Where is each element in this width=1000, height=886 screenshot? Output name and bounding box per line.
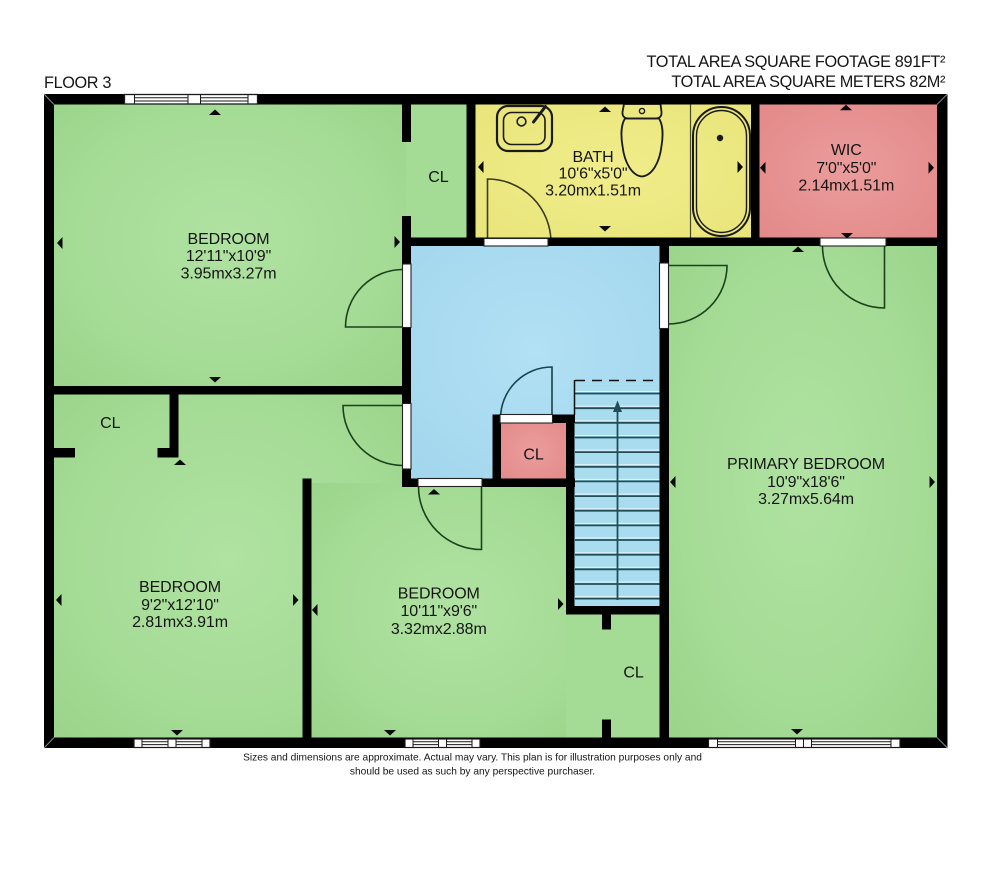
svg-text:Sizes and dimensions are appro: Sizes and dimensions are approximate. Ac… bbox=[243, 753, 702, 764]
svg-text:10'9"x18'6": 10'9"x18'6" bbox=[767, 474, 845, 491]
svg-text:10'11"x9'6": 10'11"x9'6" bbox=[401, 603, 478, 620]
svg-text:3.27mx5.64m: 3.27mx5.64m bbox=[758, 491, 854, 508]
svg-text:3.20mx1.51m: 3.20mx1.51m bbox=[545, 183, 641, 200]
svg-text:BEDROOM: BEDROOM bbox=[139, 579, 221, 596]
svg-text:CL: CL bbox=[428, 169, 448, 186]
svg-text:3.95mx3.27m: 3.95mx3.27m bbox=[181, 266, 277, 283]
svg-text:PRIMARY BEDROOM: PRIMARY BEDROOM bbox=[727, 456, 885, 473]
svg-text:12'11"x10'9": 12'11"x10'9" bbox=[186, 248, 271, 265]
svg-text:TOTAL AREA SQUARE METERS 82M²: TOTAL AREA SQUARE METERS 82M² bbox=[671, 73, 946, 91]
svg-text:CL: CL bbox=[523, 447, 543, 464]
svg-text:BEDROOM: BEDROOM bbox=[398, 586, 480, 603]
svg-text:BEDROOM: BEDROOM bbox=[188, 231, 270, 248]
svg-text:BATH: BATH bbox=[572, 149, 613, 166]
svg-text:FLOOR 3: FLOOR 3 bbox=[44, 74, 111, 92]
svg-text:3.32mx2.88m: 3.32mx2.88m bbox=[391, 621, 487, 638]
svg-text:7'0"x5'0": 7'0"x5'0" bbox=[816, 160, 876, 177]
svg-text:TOTAL AREA SQUARE FOOTAGE 891F: TOTAL AREA SQUARE FOOTAGE 891FT² bbox=[647, 53, 946, 71]
svg-text:9'2"x12'10": 9'2"x12'10" bbox=[141, 597, 219, 614]
svg-text:CL: CL bbox=[623, 665, 643, 682]
svg-text:WIC: WIC bbox=[831, 142, 862, 159]
svg-text:2.14mx1.51m: 2.14mx1.51m bbox=[798, 178, 894, 195]
svg-text:10'6"x5'0": 10'6"x5'0" bbox=[559, 166, 628, 183]
svg-text:2.81mx3.91m: 2.81mx3.91m bbox=[132, 614, 228, 631]
svg-text:should be used as such by any: should be used as such by any perspectiv… bbox=[350, 767, 595, 778]
svg-text:CL: CL bbox=[100, 415, 120, 432]
